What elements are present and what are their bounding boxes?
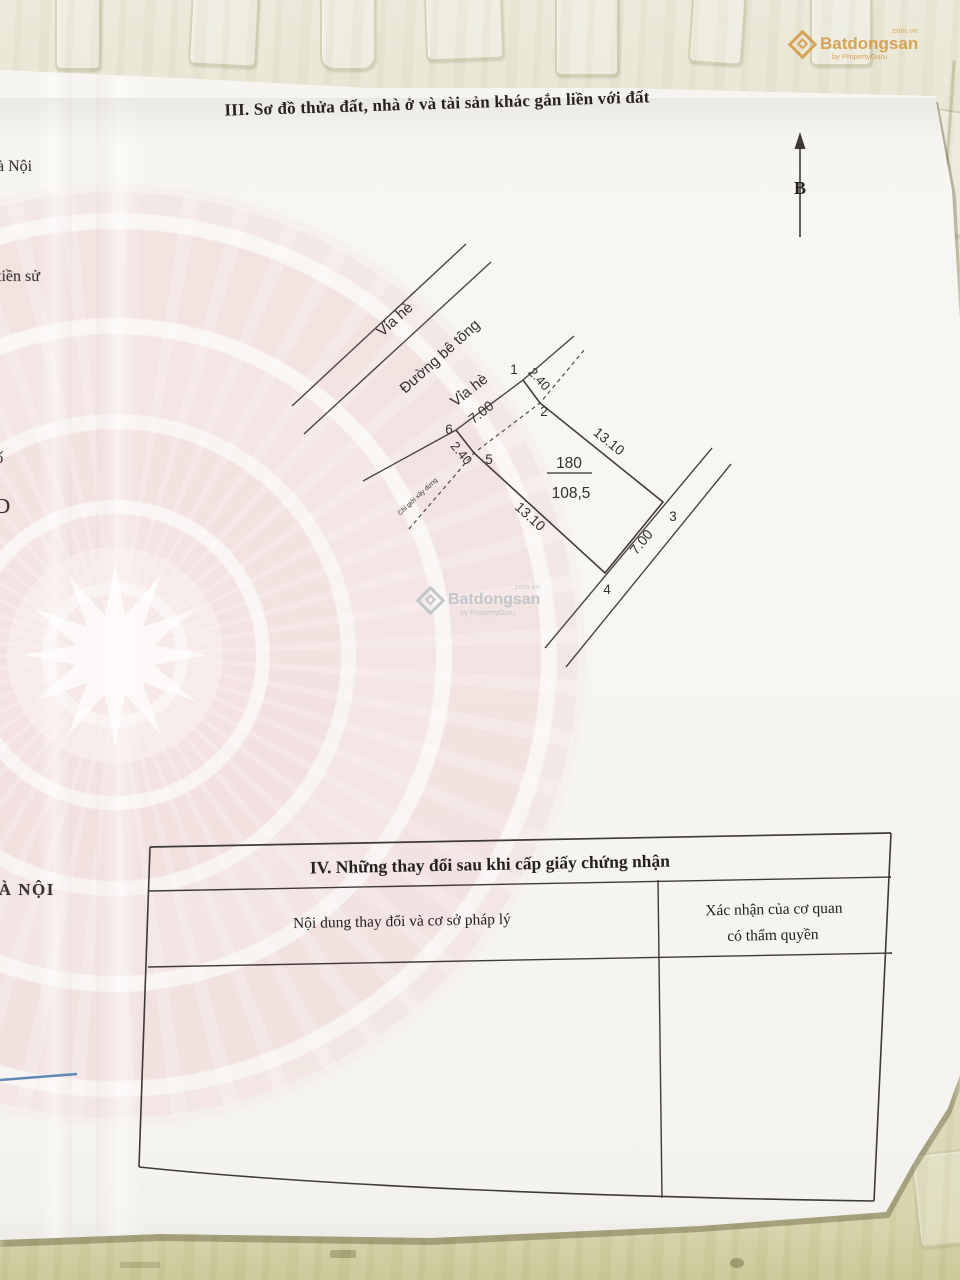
sidewalk-label-top: Vỉa hè: [373, 299, 416, 340]
blue-ink-line: [0, 1074, 77, 1080]
north-label: B: [794, 178, 806, 198]
watermark-text: .com.vn Batdongsan by PropertyGuru: [820, 28, 918, 61]
vertex-5: 5: [485, 452, 493, 467]
batdongsan-watermark-wall: .com.vn Batdongsan by PropertyGuru: [792, 28, 918, 61]
vertex-1: 1: [510, 362, 518, 377]
certificate-page: à Nội ) tiền sử số D HÀ NỘI III. Sơ đồ t…: [0, 0, 960, 1280]
batdongsan-diamond-icon: [788, 30, 818, 60]
construction-line-label: Chỉ giới xây dựng: [396, 476, 439, 517]
wall-emboss-shape: [424, 0, 504, 61]
vertex-4: 4: [603, 582, 611, 597]
batdongsan-diamond-icon: [416, 586, 446, 616]
dim-right: 13.10: [590, 424, 627, 459]
watermark-text: .com.vn Batdongsan by PropertyGuru: [448, 584, 540, 617]
vertex-3: 3: [669, 509, 677, 524]
dim-setback-left: 2.40: [448, 439, 476, 468]
table-borders: [139, 833, 892, 1201]
watermark-brand: Batdongsan: [820, 35, 918, 52]
wall-emboss-shape: [55, 0, 101, 70]
plot-diagram-and-table: B Vỉa hè Đường bê tông Vỉa hè: [0, 0, 960, 1280]
vertex-2: 2: [540, 404, 548, 419]
road-edge-line: [304, 262, 491, 434]
wall-emboss-shape: [320, 0, 376, 70]
watermark-byline: by PropertyGuru: [460, 608, 540, 617]
table-col-content-header: Nội dung thay đổi và cơ sở pháp lý: [293, 911, 511, 932]
wall-stain: [730, 1258, 744, 1268]
diagram-labels: Vỉa hè Đường bê tông Vỉa hè Chỉ giới xây…: [373, 299, 676, 597]
watermark-byline: by PropertyGuru: [832, 52, 918, 61]
dim-back: 7.00: [626, 526, 656, 557]
watermark-domain: .com.vn: [448, 584, 540, 591]
wall-stain: [330, 1250, 356, 1258]
batdongsan-watermark-paper: .com.vn Batdongsan by PropertyGuru: [420, 584, 540, 617]
section-iv-title: IV. Những thay đổi sau khi cấp giấy chứn…: [310, 851, 671, 878]
parcel-area: 108,5: [552, 485, 591, 502]
wall-stain: [120, 1262, 160, 1268]
watermark-brand: Batdongsan: [448, 591, 540, 608]
north-arrow: B: [794, 132, 806, 237]
table-col-confirm-header-line2: có thẩm quyền: [727, 926, 819, 945]
photo-of-land-certificate: .com.vn Batdongsan by PropertyGuru à Nội…: [0, 0, 960, 1280]
dim-front: 7.00: [465, 397, 496, 427]
table-column-divider: [658, 880, 662, 1198]
wall-emboss-shape: [555, 0, 619, 76]
emblem-star: [7, 547, 223, 763]
parcel-number: 180: [556, 455, 582, 472]
table-col-confirm-header-line1: Xác nhận của cơ quan: [705, 900, 843, 920]
table-texts: IV. Những thay đổi sau khi cấp giấy chứn…: [293, 851, 843, 945]
wall-emboss-shape: [688, 0, 747, 66]
vertex-6: 6: [445, 422, 453, 437]
wall-emboss-shape: [188, 0, 260, 68]
construction-boundary-dashed-line: [409, 349, 585, 529]
